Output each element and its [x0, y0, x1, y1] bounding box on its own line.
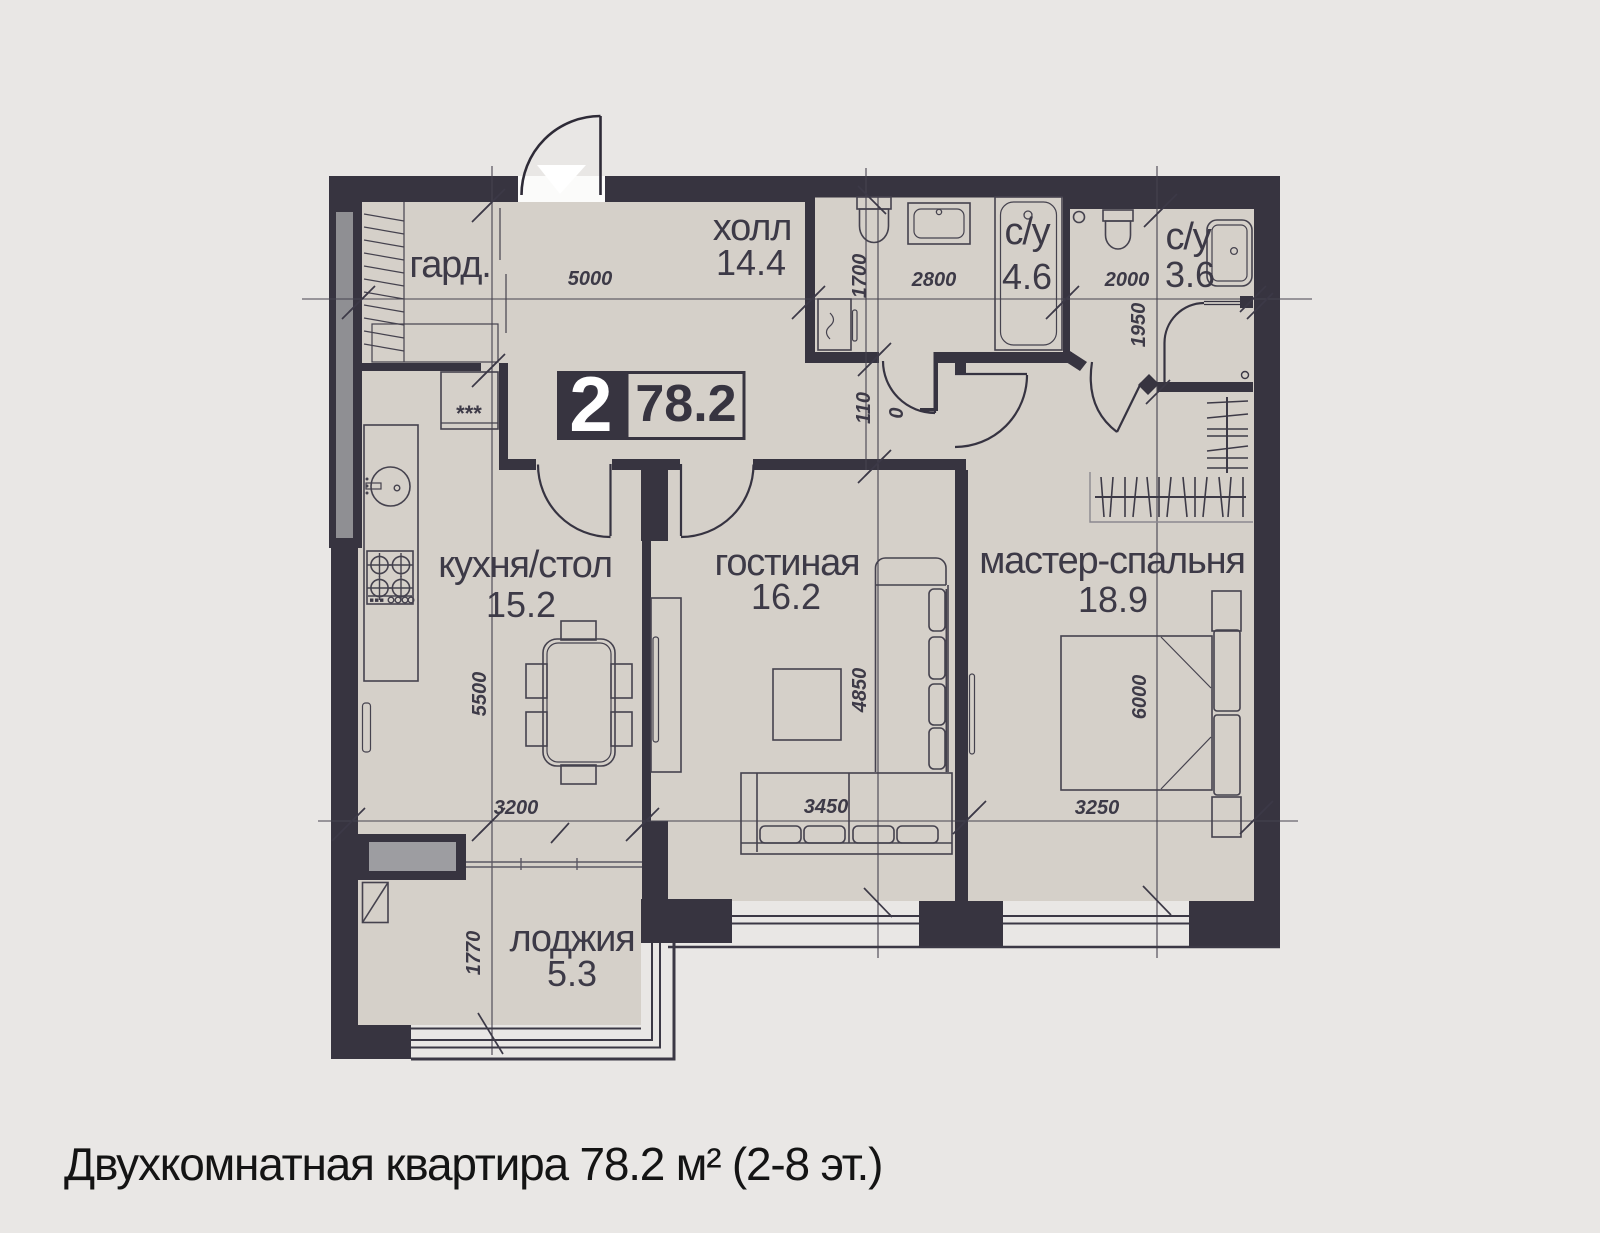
- svg-text:кухня/стол: кухня/стол: [438, 544, 612, 586]
- svg-text:78.2: 78.2: [635, 375, 736, 433]
- svg-text:5.3: 5.3: [547, 953, 597, 994]
- svg-text:гард.: гард.: [409, 244, 490, 286]
- svg-text:3450: 3450: [804, 796, 849, 818]
- svg-text:3.6: 3.6: [1165, 254, 1215, 295]
- svg-text:0: 0: [886, 407, 908, 418]
- svg-text:3200: 3200: [494, 797, 539, 819]
- svg-text:2: 2: [569, 360, 612, 448]
- svg-text:1700: 1700: [849, 254, 871, 299]
- svg-text:4850: 4850: [849, 668, 871, 714]
- svg-text:Двухкомнатная квартира 78.2 м²: Двухкомнатная квартира 78.2 м² (2-8 эт.): [64, 1138, 882, 1190]
- svg-text:3250: 3250: [1075, 797, 1120, 819]
- svg-text:16.2: 16.2: [751, 576, 821, 617]
- svg-text:с/у: с/у: [1166, 216, 1212, 258]
- svg-text:14.4: 14.4: [716, 242, 786, 283]
- svg-text:4.6: 4.6: [1002, 256, 1052, 297]
- svg-text:1770: 1770: [463, 931, 485, 976]
- svg-text:с/у: с/у: [1005, 211, 1051, 253]
- svg-text:5500: 5500: [469, 672, 491, 717]
- svg-text:18.9: 18.9: [1078, 579, 1148, 620]
- svg-text:мастер-спальня: мастер-спальня: [979, 540, 1245, 582]
- svg-text:15.2: 15.2: [486, 584, 556, 625]
- svg-text:2800: 2800: [911, 269, 957, 291]
- svg-text:110: 110: [853, 392, 875, 424]
- svg-text:1950: 1950: [1128, 303, 1150, 348]
- svg-text:***: ***: [456, 401, 482, 426]
- svg-text:2000: 2000: [1104, 269, 1150, 291]
- svg-text:6000: 6000: [1129, 675, 1151, 720]
- svg-text:5000: 5000: [568, 268, 613, 290]
